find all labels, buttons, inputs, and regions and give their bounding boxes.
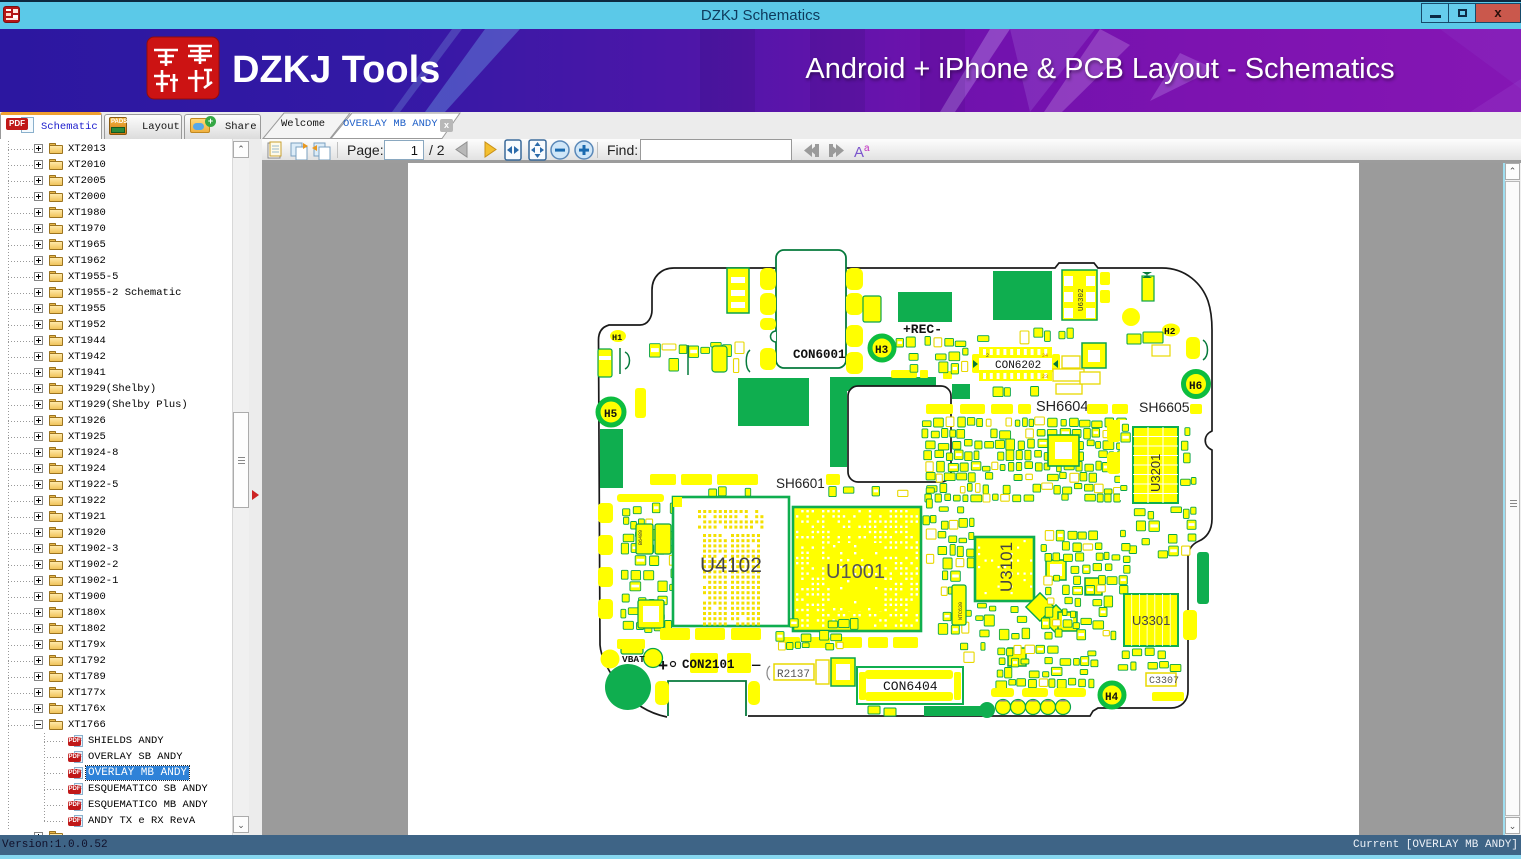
svg-text:H2: H2 [1164,326,1176,337]
svg-text:SH6601: SH6601 [776,476,825,491]
svg-text:C3307: C3307 [1149,676,1179,687]
svg-text:23: 23 [1042,374,1048,380]
svg-text:+: + [658,658,668,677]
svg-text:CON6404: CON6404 [883,679,938,694]
svg-text:U4102: U4102 [700,554,762,577]
svg-text:SH6604: SH6604 [1036,399,1088,415]
svg-text:H3: H3 [875,345,889,357]
svg-text:VBAT: VBAT [622,654,645,665]
svg-text:NTC630: NTC630 [958,602,964,620]
svg-text:2: 2 [986,353,989,359]
svg-text:CON6202: CON6202 [995,360,1041,372]
svg-text:H6: H6 [1189,381,1202,393]
svg-text:CON6001: CON6001 [793,348,846,362]
svg-text:U6302: U6302 [1078,288,1086,311]
svg-text:R2137: R2137 [777,669,810,681]
svg-text:a: a [864,143,870,154]
svg-text:+REC-: +REC- [903,322,942,337]
svg-text:H5: H5 [604,409,618,421]
svg-text:CON2101: CON2101 [682,658,735,672]
svg-text:A: A [854,144,864,159]
svg-text:24: 24 [1042,353,1048,359]
svg-text:U3301: U3301 [1132,613,1170,628]
svg-text:U3101: U3101 [997,542,1016,592]
svg-text:U1001: U1001 [826,561,885,583]
svg-text:SH6605: SH6605 [1139,399,1190,415]
svg-text:H4: H4 [1105,692,1119,704]
svg-text:—: — [751,658,761,674]
svg-text:B6489: B6489 [638,530,644,545]
svg-text:U3201: U3201 [1148,454,1163,492]
svg-text:H1: H1 [612,333,622,343]
